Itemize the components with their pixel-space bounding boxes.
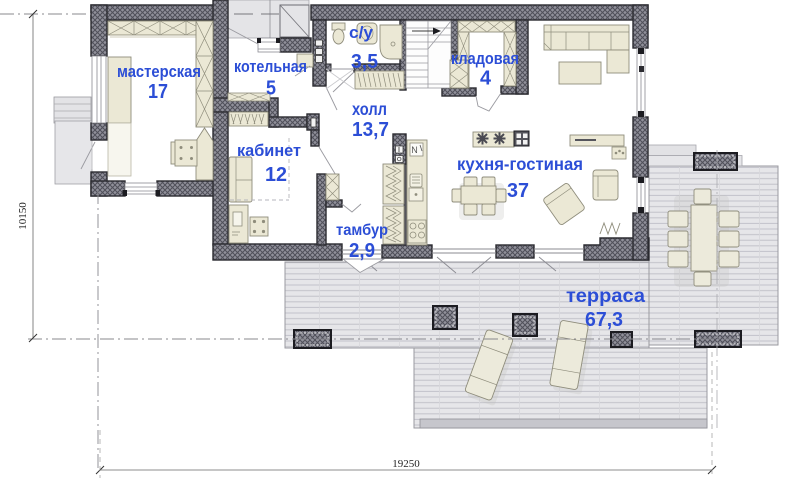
svg-text:кладовая: кладовая (451, 50, 519, 68)
svg-text:12: 12 (265, 164, 287, 186)
svg-text:холл: холл (352, 99, 387, 119)
svg-text:67,3: 67,3 (585, 309, 623, 331)
svg-text:2,9: 2,9 (349, 240, 375, 262)
svg-text:N: N (411, 145, 418, 155)
svg-text:терраса: терраса (566, 286, 645, 307)
svg-text:с/у: с/у (349, 24, 374, 42)
svg-text:10150: 10150 (17, 202, 29, 230)
svg-text:37: 37 (507, 180, 529, 202)
svg-text:мастерская: мастерская (117, 63, 201, 81)
svg-text:котельная: котельная (234, 58, 307, 76)
svg-text:3,5: 3,5 (351, 51, 378, 73)
svg-text:13,7: 13,7 (352, 119, 389, 141)
svg-text:19250: 19250 (392, 458, 420, 470)
svg-text:кухня-гостиная: кухня-гостиная (457, 154, 583, 174)
svg-text:тамбур: тамбур (336, 222, 388, 239)
svg-text:17: 17 (148, 81, 168, 103)
svg-text:5: 5 (266, 78, 276, 100)
svg-text:кабинет: кабинет (237, 142, 301, 160)
svg-text:4: 4 (480, 68, 492, 90)
